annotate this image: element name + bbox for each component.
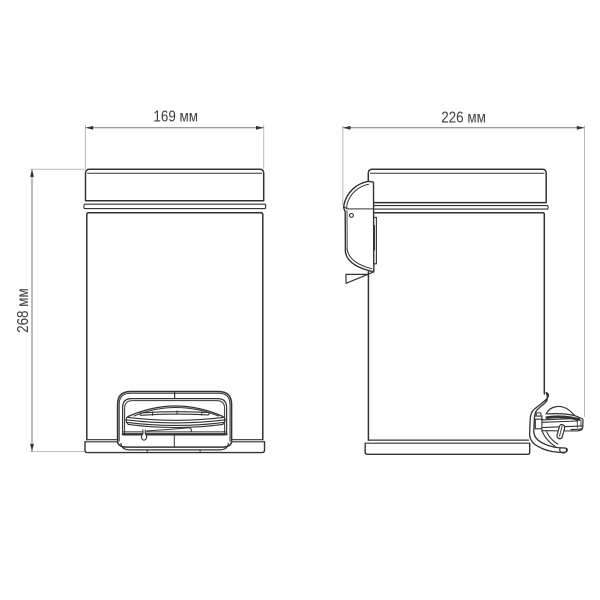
svg-text:226 мм: 226 мм: [441, 109, 486, 126]
svg-text:169 мм: 169 мм: [153, 109, 198, 126]
svg-text:268 мм: 268 мм: [15, 288, 32, 333]
